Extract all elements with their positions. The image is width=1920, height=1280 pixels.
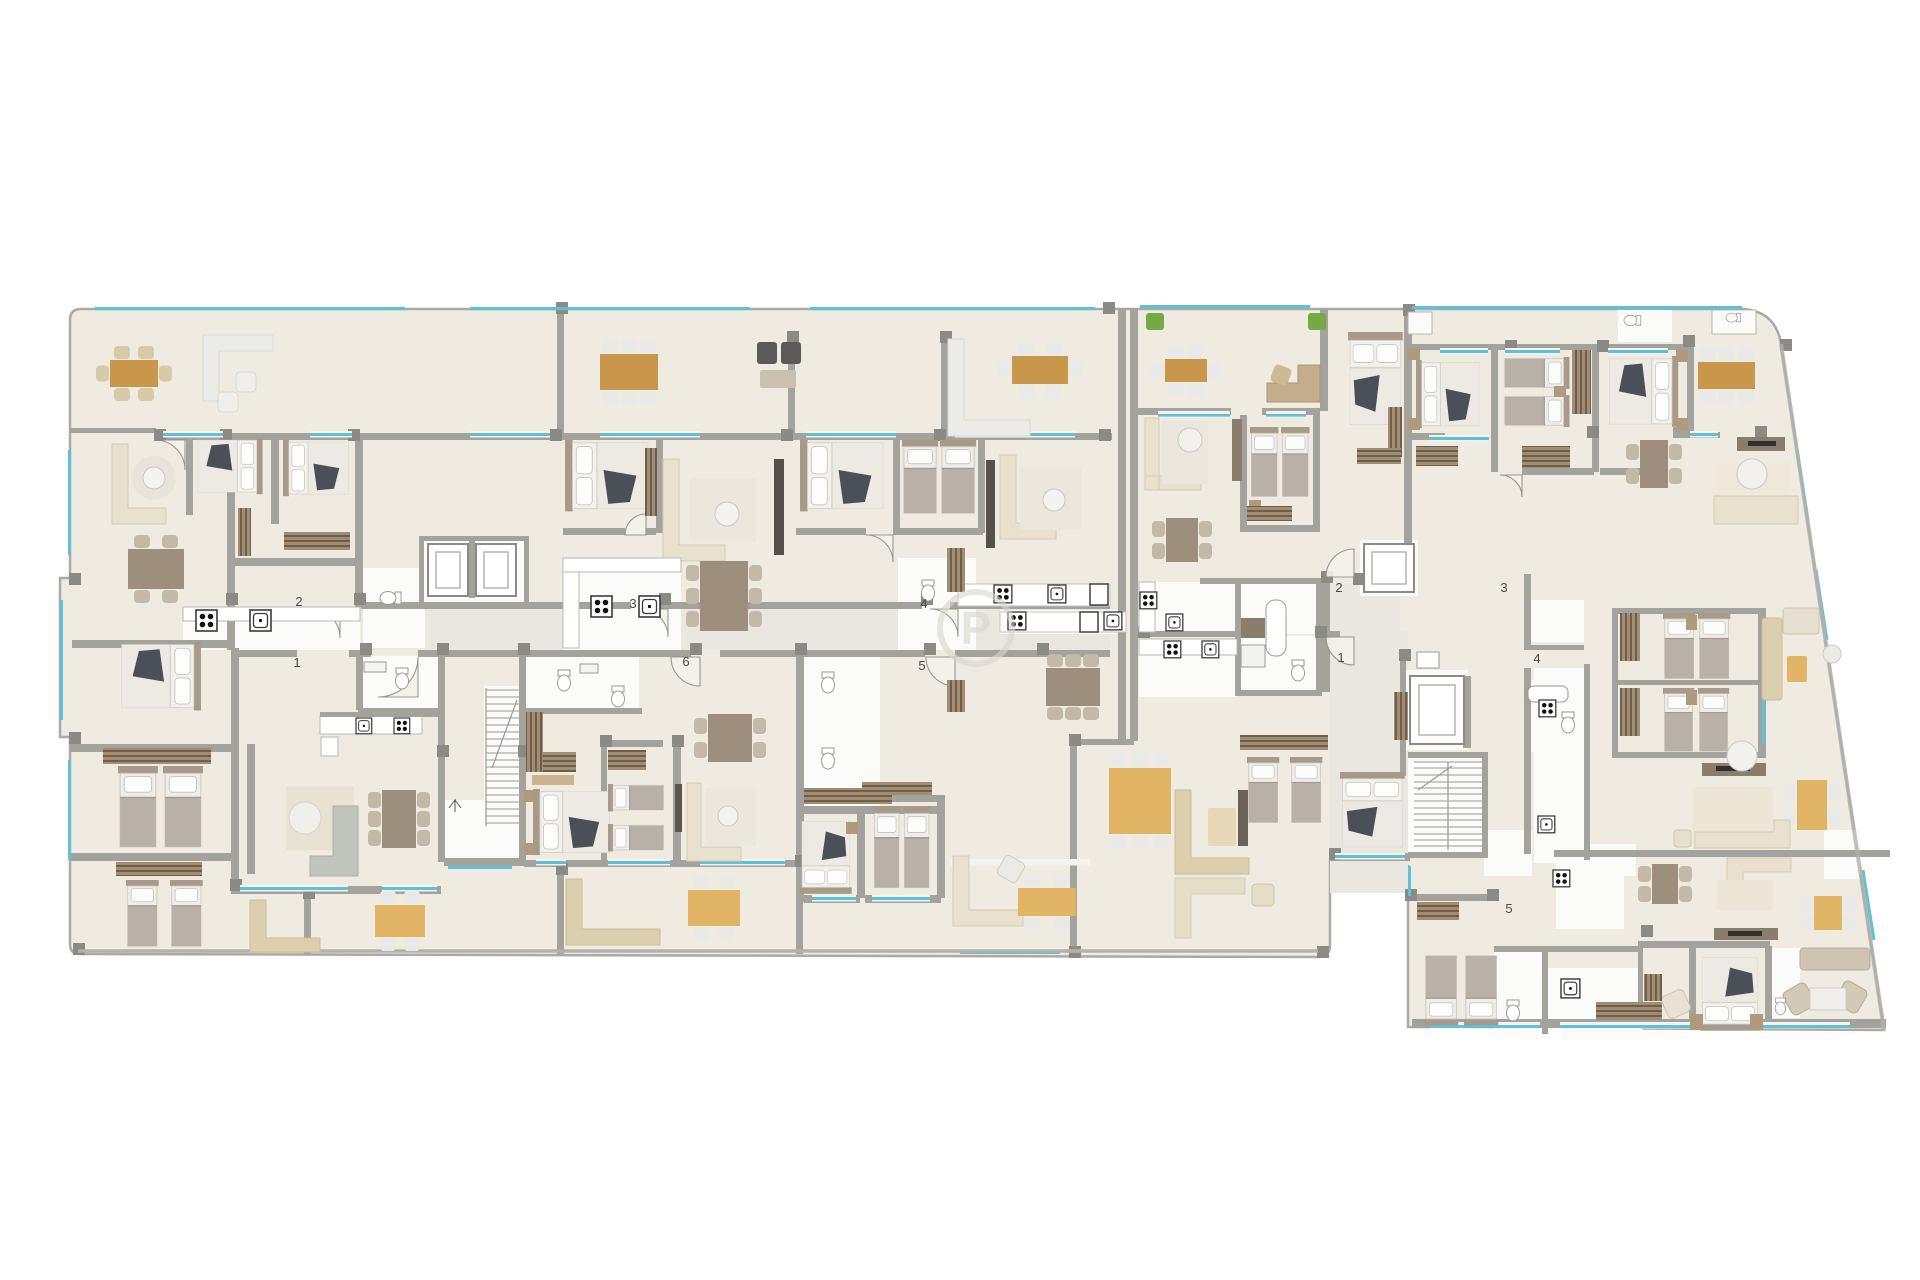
svg-text:3: 3 xyxy=(1500,580,1507,595)
svg-text:5: 5 xyxy=(1505,901,1512,916)
svg-text:1: 1 xyxy=(293,655,300,670)
svg-text:2: 2 xyxy=(295,594,302,609)
svg-text:4: 4 xyxy=(920,596,927,611)
svg-text:1: 1 xyxy=(1337,650,1344,665)
svg-text:2: 2 xyxy=(1335,580,1342,595)
svg-text:6: 6 xyxy=(682,654,689,669)
svg-text:P: P xyxy=(961,602,992,654)
svg-text:5: 5 xyxy=(918,658,925,673)
svg-text:4: 4 xyxy=(1533,651,1540,666)
svg-text:3: 3 xyxy=(629,596,636,611)
